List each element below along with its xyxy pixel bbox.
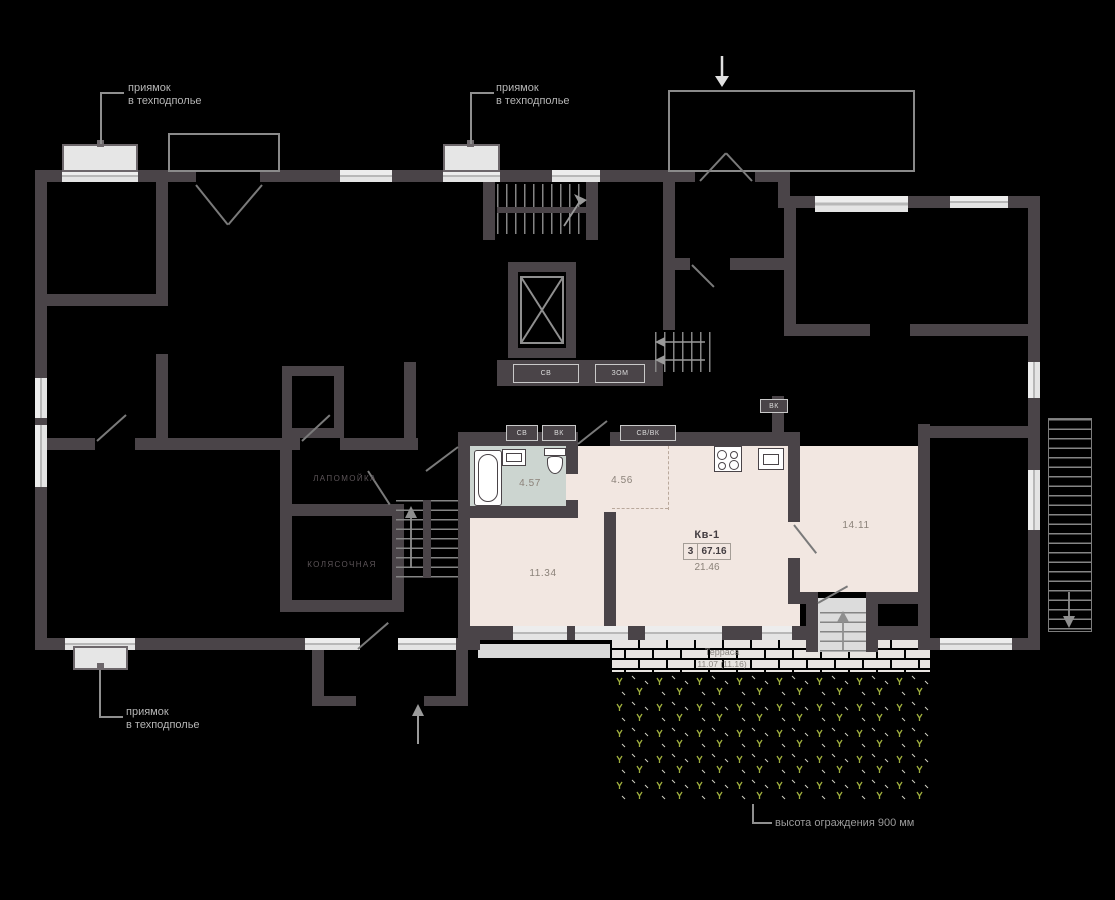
door-leaf — [577, 420, 607, 445]
apartment-rooms-count: 3 — [684, 544, 698, 559]
wall-segment — [135, 438, 300, 450]
zone-dashed-line — [668, 446, 669, 510]
stair-up-arrow-icon — [556, 186, 592, 230]
apartment-living-area: 21.46 — [683, 562, 731, 573]
pit-annotation: приямок в техподполье — [126, 706, 200, 732]
room-label-stroller: колясочная — [292, 560, 392, 569]
window — [762, 626, 792, 640]
wall-segment — [340, 438, 418, 450]
bathtub-inner — [478, 454, 498, 502]
annotation-line: приямок — [128, 82, 202, 95]
wall-segment — [1028, 196, 1040, 650]
area-living-room: 14.11 — [830, 520, 882, 531]
apartment-info-box: 3 67.16 — [683, 543, 731, 560]
stove — [714, 446, 742, 472]
area-bedroom: 11.34 — [517, 568, 569, 579]
lawn-area — [612, 672, 930, 804]
window — [35, 378, 47, 418]
wall-segment — [280, 600, 404, 612]
annotation-line: приямок — [496, 82, 570, 95]
door-leaf — [228, 184, 263, 225]
window — [1028, 470, 1040, 530]
wall-segment — [458, 432, 470, 638]
wall-segment — [918, 424, 930, 650]
wall-segment — [930, 426, 1040, 438]
stove-burner — [717, 450, 727, 460]
window — [645, 626, 722, 640]
terrace-paving — [612, 640, 930, 672]
entrance-down-arrow-icon — [712, 54, 732, 88]
window — [950, 196, 1008, 208]
pit-top-left — [62, 144, 138, 172]
window — [552, 170, 600, 182]
wall-segment — [312, 696, 356, 706]
floor-plan: приямок в техподполье приямок в техподпо… — [0, 0, 1115, 900]
stair-up-arrow-icon — [834, 610, 852, 652]
wall-segment — [784, 196, 796, 336]
pit-top-center — [443, 144, 500, 172]
door-leaf — [425, 446, 458, 472]
window — [35, 425, 47, 487]
kitchen-sink-basin — [763, 454, 779, 465]
shaft-label: ВК — [769, 403, 779, 410]
shaft-box-sv-upper: СВ — [513, 364, 579, 383]
wall-segment — [806, 592, 818, 652]
wall-segment — [458, 506, 570, 518]
shaft-box-vk: ВК — [542, 425, 576, 441]
shaft-box-zom: ЗОМ — [595, 364, 645, 383]
stove-burner — [718, 462, 726, 470]
leader-line — [752, 804, 754, 824]
window — [305, 638, 360, 650]
leader-line — [99, 670, 101, 718]
apartment-card[interactable]: Кв-1 3 67.16 21.46 — [683, 529, 731, 573]
leader-line — [100, 92, 124, 94]
pit-annotation: приямок в техподполье — [496, 82, 570, 108]
stair-up-arrow-icon — [402, 504, 420, 570]
window — [575, 626, 628, 640]
stair-down-arrow-icon — [1060, 590, 1078, 630]
wall-segment — [404, 362, 416, 438]
apartment-name: Кв-1 — [683, 529, 731, 541]
window — [940, 638, 1012, 650]
wall-segment — [280, 504, 404, 516]
shaft-label: СВ/ВК — [637, 430, 660, 437]
wall-segment — [483, 182, 495, 240]
wall-segment — [458, 626, 806, 640]
entrance-porch — [478, 644, 610, 658]
sink — [502, 449, 526, 466]
pit-annotation: приямок в техподполье — [128, 82, 202, 108]
room-label-pawwash: лапомойка — [300, 474, 390, 483]
sink-basin — [506, 453, 522, 462]
shaft-box-vk-small: ВК — [760, 399, 788, 413]
wall-segment — [604, 512, 616, 626]
leader-line — [100, 92, 102, 144]
wall-segment — [788, 432, 800, 522]
shaft-box-sv: СВ — [506, 425, 538, 441]
annotation-line: в техподполье — [496, 95, 570, 108]
wall-segment — [280, 438, 292, 612]
annotation-line: приямок — [126, 706, 200, 719]
fence-annotation: высота ограждения 900 мм — [775, 817, 914, 830]
annotation-line: в техподполье — [126, 719, 200, 732]
leader-marker — [97, 663, 104, 670]
wall-segment — [663, 258, 690, 270]
window — [340, 170, 392, 182]
shaft-label: ВК — [554, 430, 564, 437]
window — [1028, 362, 1040, 398]
wall-segment — [282, 366, 344, 376]
wall-segment — [47, 294, 168, 306]
bathtub — [474, 450, 502, 506]
entrance-canopy — [168, 133, 280, 172]
terrace-label: Терраса — [674, 648, 770, 657]
wall-segment — [910, 324, 1040, 336]
leader-line — [752, 822, 772, 824]
elevator-icon — [520, 276, 564, 344]
area-bathroom: 4.57 — [505, 478, 555, 489]
wall-segment — [784, 324, 870, 336]
entrance-canopy — [668, 90, 915, 172]
entrance-up-arrow-icon — [408, 702, 428, 746]
wall-segment — [35, 170, 778, 182]
door-leaf — [691, 264, 714, 287]
window — [513, 626, 567, 640]
leader-line — [470, 92, 494, 94]
shaft-label: ЗОМ — [612, 370, 629, 377]
stair-rail — [423, 500, 431, 578]
apartment-kv1-room-area[interactable] — [800, 446, 918, 592]
area-hallway: 4.56 — [597, 475, 647, 486]
terrace-area: 11.07 (11.16) — [674, 660, 770, 669]
wall-segment — [156, 182, 168, 302]
wall-segment — [424, 696, 468, 706]
stair-direction-arrows-icon — [653, 334, 709, 368]
door-leaf — [96, 414, 126, 442]
window — [815, 196, 908, 212]
wall-segment — [156, 354, 168, 438]
zone-dashed-line — [612, 508, 668, 509]
shaft-box-sv-vk: СВ/ВК — [620, 425, 676, 441]
kitchen-sink — [758, 448, 784, 470]
wall-segment — [663, 182, 675, 262]
wall-segment — [866, 592, 878, 652]
wall-segment — [663, 270, 675, 330]
toilet-tank — [544, 448, 566, 456]
window — [398, 638, 456, 650]
wall-segment — [47, 438, 95, 450]
stove-burner — [730, 451, 738, 459]
annotation-line: в техподполье — [128, 95, 202, 108]
leader-line — [99, 716, 123, 718]
stove-burner — [729, 460, 739, 470]
apartment-total-area: 67.16 — [698, 544, 730, 559]
leader-line — [470, 92, 472, 144]
shaft-label: СВ — [541, 370, 552, 377]
door-leaf — [195, 184, 228, 225]
shaft-label: СВ — [517, 430, 528, 437]
